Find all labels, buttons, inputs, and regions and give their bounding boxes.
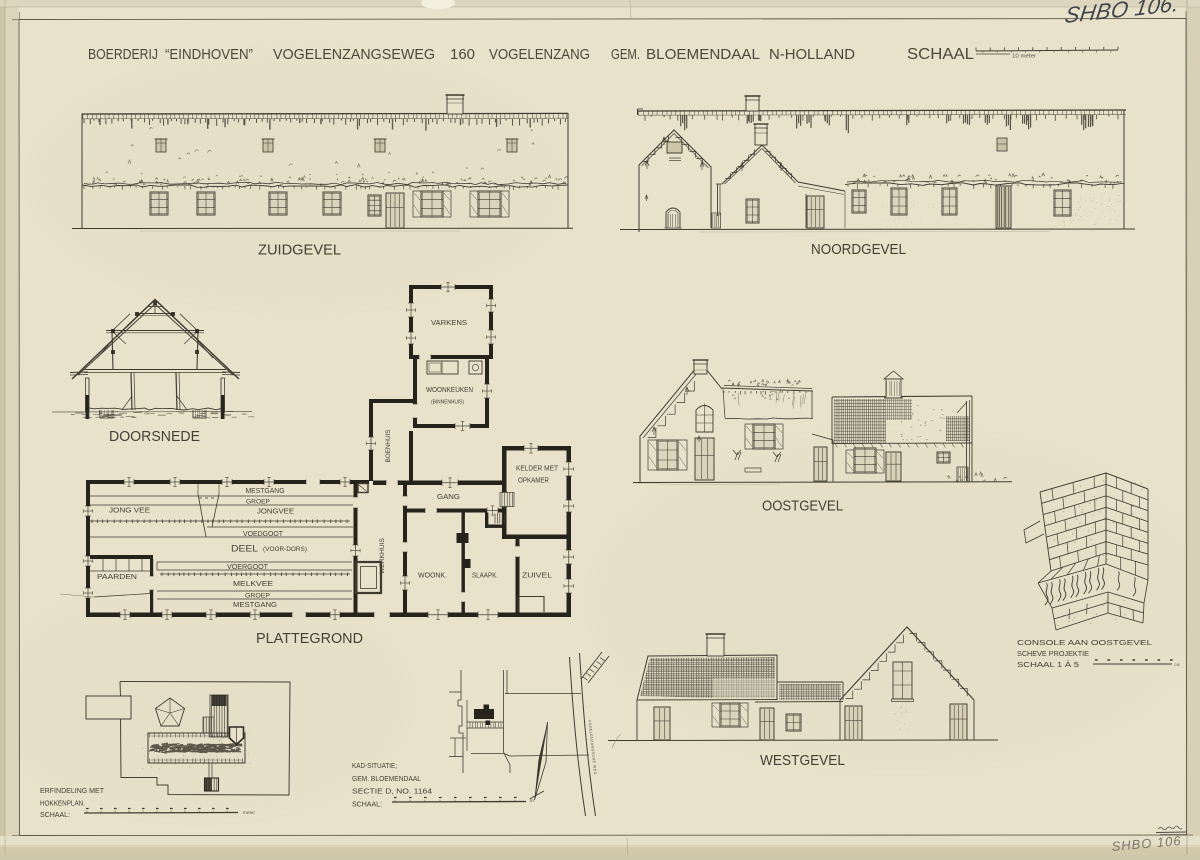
svg-text:WOONKEUKEN: WOONKEUKEN (426, 387, 473, 394)
svg-text:meter: meter (243, 810, 256, 815)
svg-text:GROEP: GROEP (245, 593, 270, 600)
svg-text:N-HOLLAND: N-HOLLAND (769, 47, 855, 63)
svg-text:(BINNENHUIS): (BINNENHUIS) (431, 400, 464, 406)
svg-text:MELKVEE: MELKVEE (233, 579, 273, 588)
svg-text:ERFINDELING MET: ERFINDELING MET (40, 786, 104, 795)
svg-text:VOERGOOT: VOERGOOT (227, 564, 269, 571)
svg-text:DEEL: DEEL (231, 544, 258, 554)
svg-text:JONGVEE: JONGVEE (257, 509, 294, 516)
svg-text:MESTGANG: MESTGANG (246, 488, 285, 495)
svg-text:WESTGEVEL: WESTGEVEL (760, 753, 845, 769)
svg-text:BOENHUIS: BOENHUIS (385, 429, 392, 463)
svg-text:SCHEVE PROJEKTIE: SCHEVE PROJEKTIE (1017, 649, 1089, 658)
svg-text:m: m (530, 798, 534, 803)
svg-text:WERKHUIS: WERKHUIS (379, 537, 386, 574)
svg-text:VARKENS: VARKENS (431, 320, 467, 327)
svg-text:GEM. BLOEMENDAAL: GEM. BLOEMENDAAL (352, 774, 421, 783)
svg-text:HOKKENPLAN.: HOKKENPLAN. (40, 799, 85, 808)
svg-text:JONG VEE: JONG VEE (109, 508, 150, 515)
svg-text:CM: CM (1174, 663, 1180, 667)
svg-text:“EINDHOVEN”: “EINDHOVEN” (165, 47, 253, 63)
svg-text:PLATTEGROND: PLATTEGROND (256, 631, 363, 647)
svg-text:SCHAAL:: SCHAAL: (352, 800, 382, 809)
svg-text:SCHAAL: SCHAAL (907, 46, 974, 63)
svg-text:OPKAMER: OPKAMER (518, 478, 549, 485)
svg-text:GEM.: GEM. (611, 47, 640, 63)
svg-text:PAARDEN: PAARDEN (97, 572, 137, 581)
svg-text:MESTGANG: MESTGANG (233, 600, 277, 609)
svg-text:160: 160 (450, 47, 475, 63)
svg-text:WOONK.: WOONK. (418, 571, 447, 580)
svg-text:(VOOR-DORS): (VOOR-DORS) (263, 546, 307, 553)
svg-text:VOGELENZANG: VOGELENZANG (489, 47, 590, 63)
svg-text:SCHAAL 1 À 5: SCHAAL 1 À 5 (1017, 660, 1079, 669)
svg-text:SECTIE D, NO. 1164: SECTIE D, NO. 1164 (352, 787, 432, 796)
svg-text:SCHAAL:: SCHAAL: (40, 810, 70, 819)
svg-text:VOGELENZANGSEWEG: VOGELENZANGSEWEG (273, 47, 435, 63)
svg-text:10 meter: 10 meter (1012, 54, 1036, 60)
svg-text:BOERDERIJ: BOERDERIJ (88, 47, 158, 63)
svg-text:BLOEMENDAAL: BLOEMENDAAL (646, 47, 760, 63)
svg-text:ZUIDGEVEL: ZUIDGEVEL (258, 243, 341, 259)
svg-text:CONSOLE AAN OOSTGEVEL: CONSOLE AAN OOSTGEVEL (1017, 638, 1152, 647)
svg-text:SLAAPK.: SLAAPK. (472, 571, 498, 580)
svg-text:KELDER MET: KELDER MET (516, 466, 559, 473)
svg-text:GANG: GANG (437, 492, 460, 501)
svg-text:ZUIVEL: ZUIVEL (522, 571, 552, 580)
svg-text:KAD-SITUATIE;: KAD-SITUATIE; (352, 761, 397, 770)
svg-text:GROEP: GROEP (246, 499, 270, 506)
svg-text:DOORSNEDE: DOORSNEDE (109, 429, 200, 445)
svg-text:OOSTGEVEL: OOSTGEVEL (762, 499, 843, 515)
svg-text:VOEDGOOT: VOEDGOOT (243, 531, 284, 538)
svg-text:NOORDGEVEL: NOORDGEVEL (811, 242, 906, 258)
